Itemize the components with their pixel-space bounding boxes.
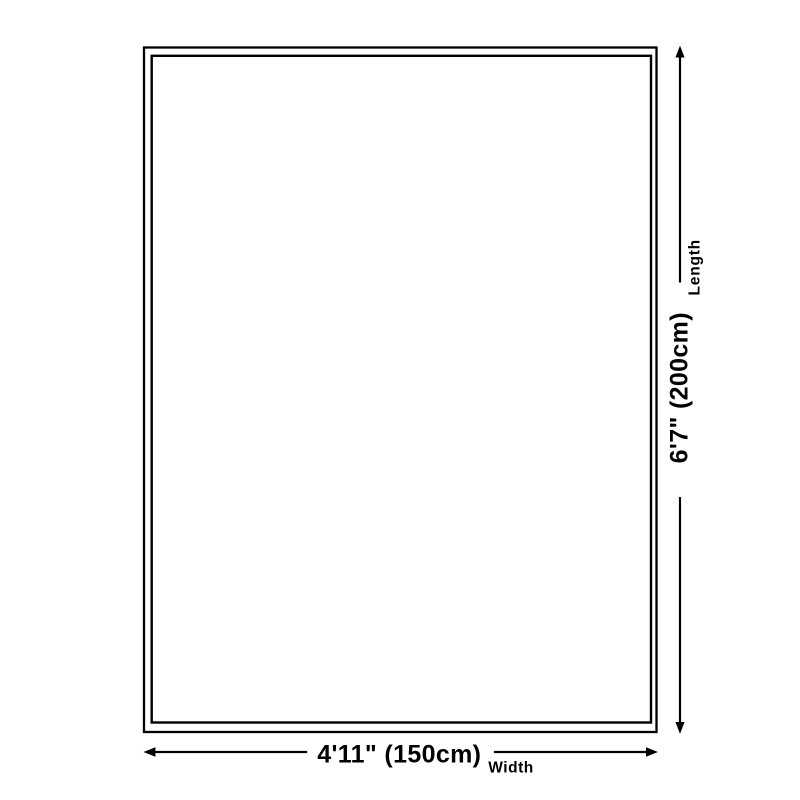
svg-text:Length: Length <box>687 239 704 295</box>
svg-text:4'11" (150cm): 4'11" (150cm) <box>317 741 481 769</box>
svg-text:Width: Width <box>488 760 533 777</box>
svg-text:6'7" (200cm): 6'7" (200cm) <box>666 312 694 463</box>
